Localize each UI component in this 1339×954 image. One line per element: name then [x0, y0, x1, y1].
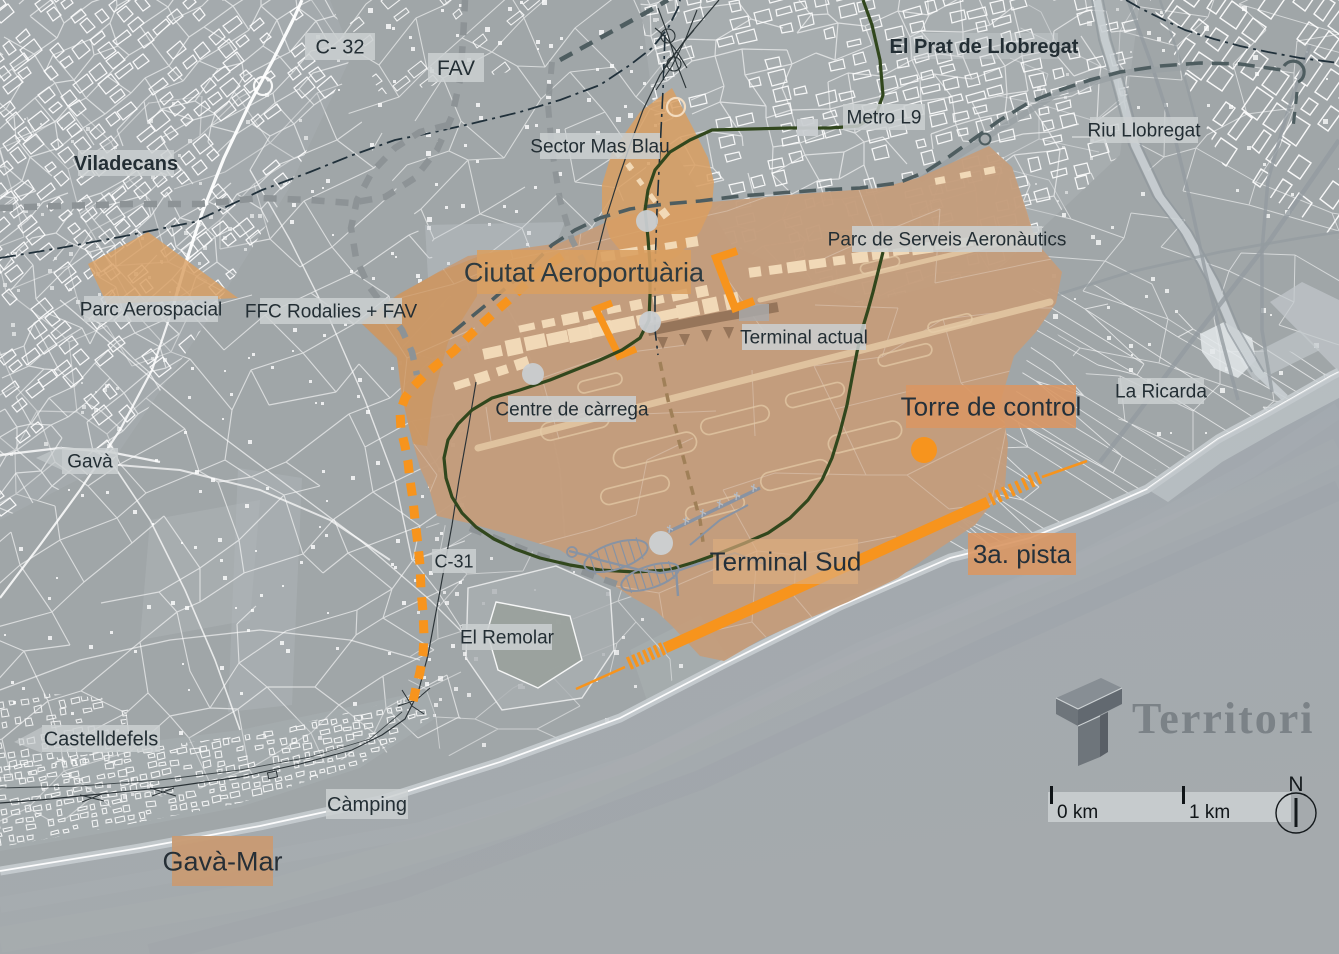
svg-text:Ciutat Aeroportuària: Ciutat Aeroportuària [464, 257, 705, 287]
svg-text:Metro L9: Metro L9 [847, 108, 922, 129]
svg-text:0 km: 0 km [1057, 802, 1098, 823]
svg-text:Viladecans: Viladecans [74, 153, 178, 175]
svg-text:1 km: 1 km [1189, 802, 1230, 823]
svg-text:El Prat de Llobregat: El Prat de Llobregat [890, 36, 1079, 58]
svg-text:Parc Aerospacial: Parc Aerospacial [80, 300, 223, 321]
svg-text:Torre de control: Torre de control [901, 392, 1082, 422]
svg-text:Parc de Serveis Aeronàutics: Parc de Serveis Aeronàutics [828, 230, 1067, 251]
svg-text:FAV: FAV [437, 57, 475, 80]
svg-text:Centre de càrrega: Centre de càrrega [495, 400, 649, 421]
svg-text:Castelldefels: Castelldefels [44, 729, 159, 751]
svg-text:Gavà: Gavà [67, 452, 113, 473]
svg-text:El Remolar: El Remolar [460, 628, 555, 649]
svg-text:3a. pista: 3a. pista [973, 539, 1072, 569]
svg-text:Riu Llobregat: Riu Llobregat [1087, 121, 1201, 142]
svg-text:C-31: C-31 [434, 551, 473, 571]
svg-text:La Ricarda: La Ricarda [1115, 382, 1207, 403]
svg-text:C- 32: C- 32 [316, 37, 365, 59]
svg-text:Gavà-Mar: Gavà-Mar [162, 847, 282, 877]
svg-text:Terminal actual: Terminal actual [740, 328, 868, 349]
svg-text:Càmping: Càmping [327, 794, 407, 816]
svg-text:Territori: Territori [1132, 694, 1315, 743]
svg-text:Sector Mas Blau: Sector Mas Blau [530, 137, 669, 158]
svg-text:FFC Rodalies + FAV: FFC Rodalies + FAV [245, 302, 418, 323]
svg-text:Terminal Sud: Terminal Sud [710, 547, 862, 577]
svg-text:N: N [1288, 773, 1303, 796]
